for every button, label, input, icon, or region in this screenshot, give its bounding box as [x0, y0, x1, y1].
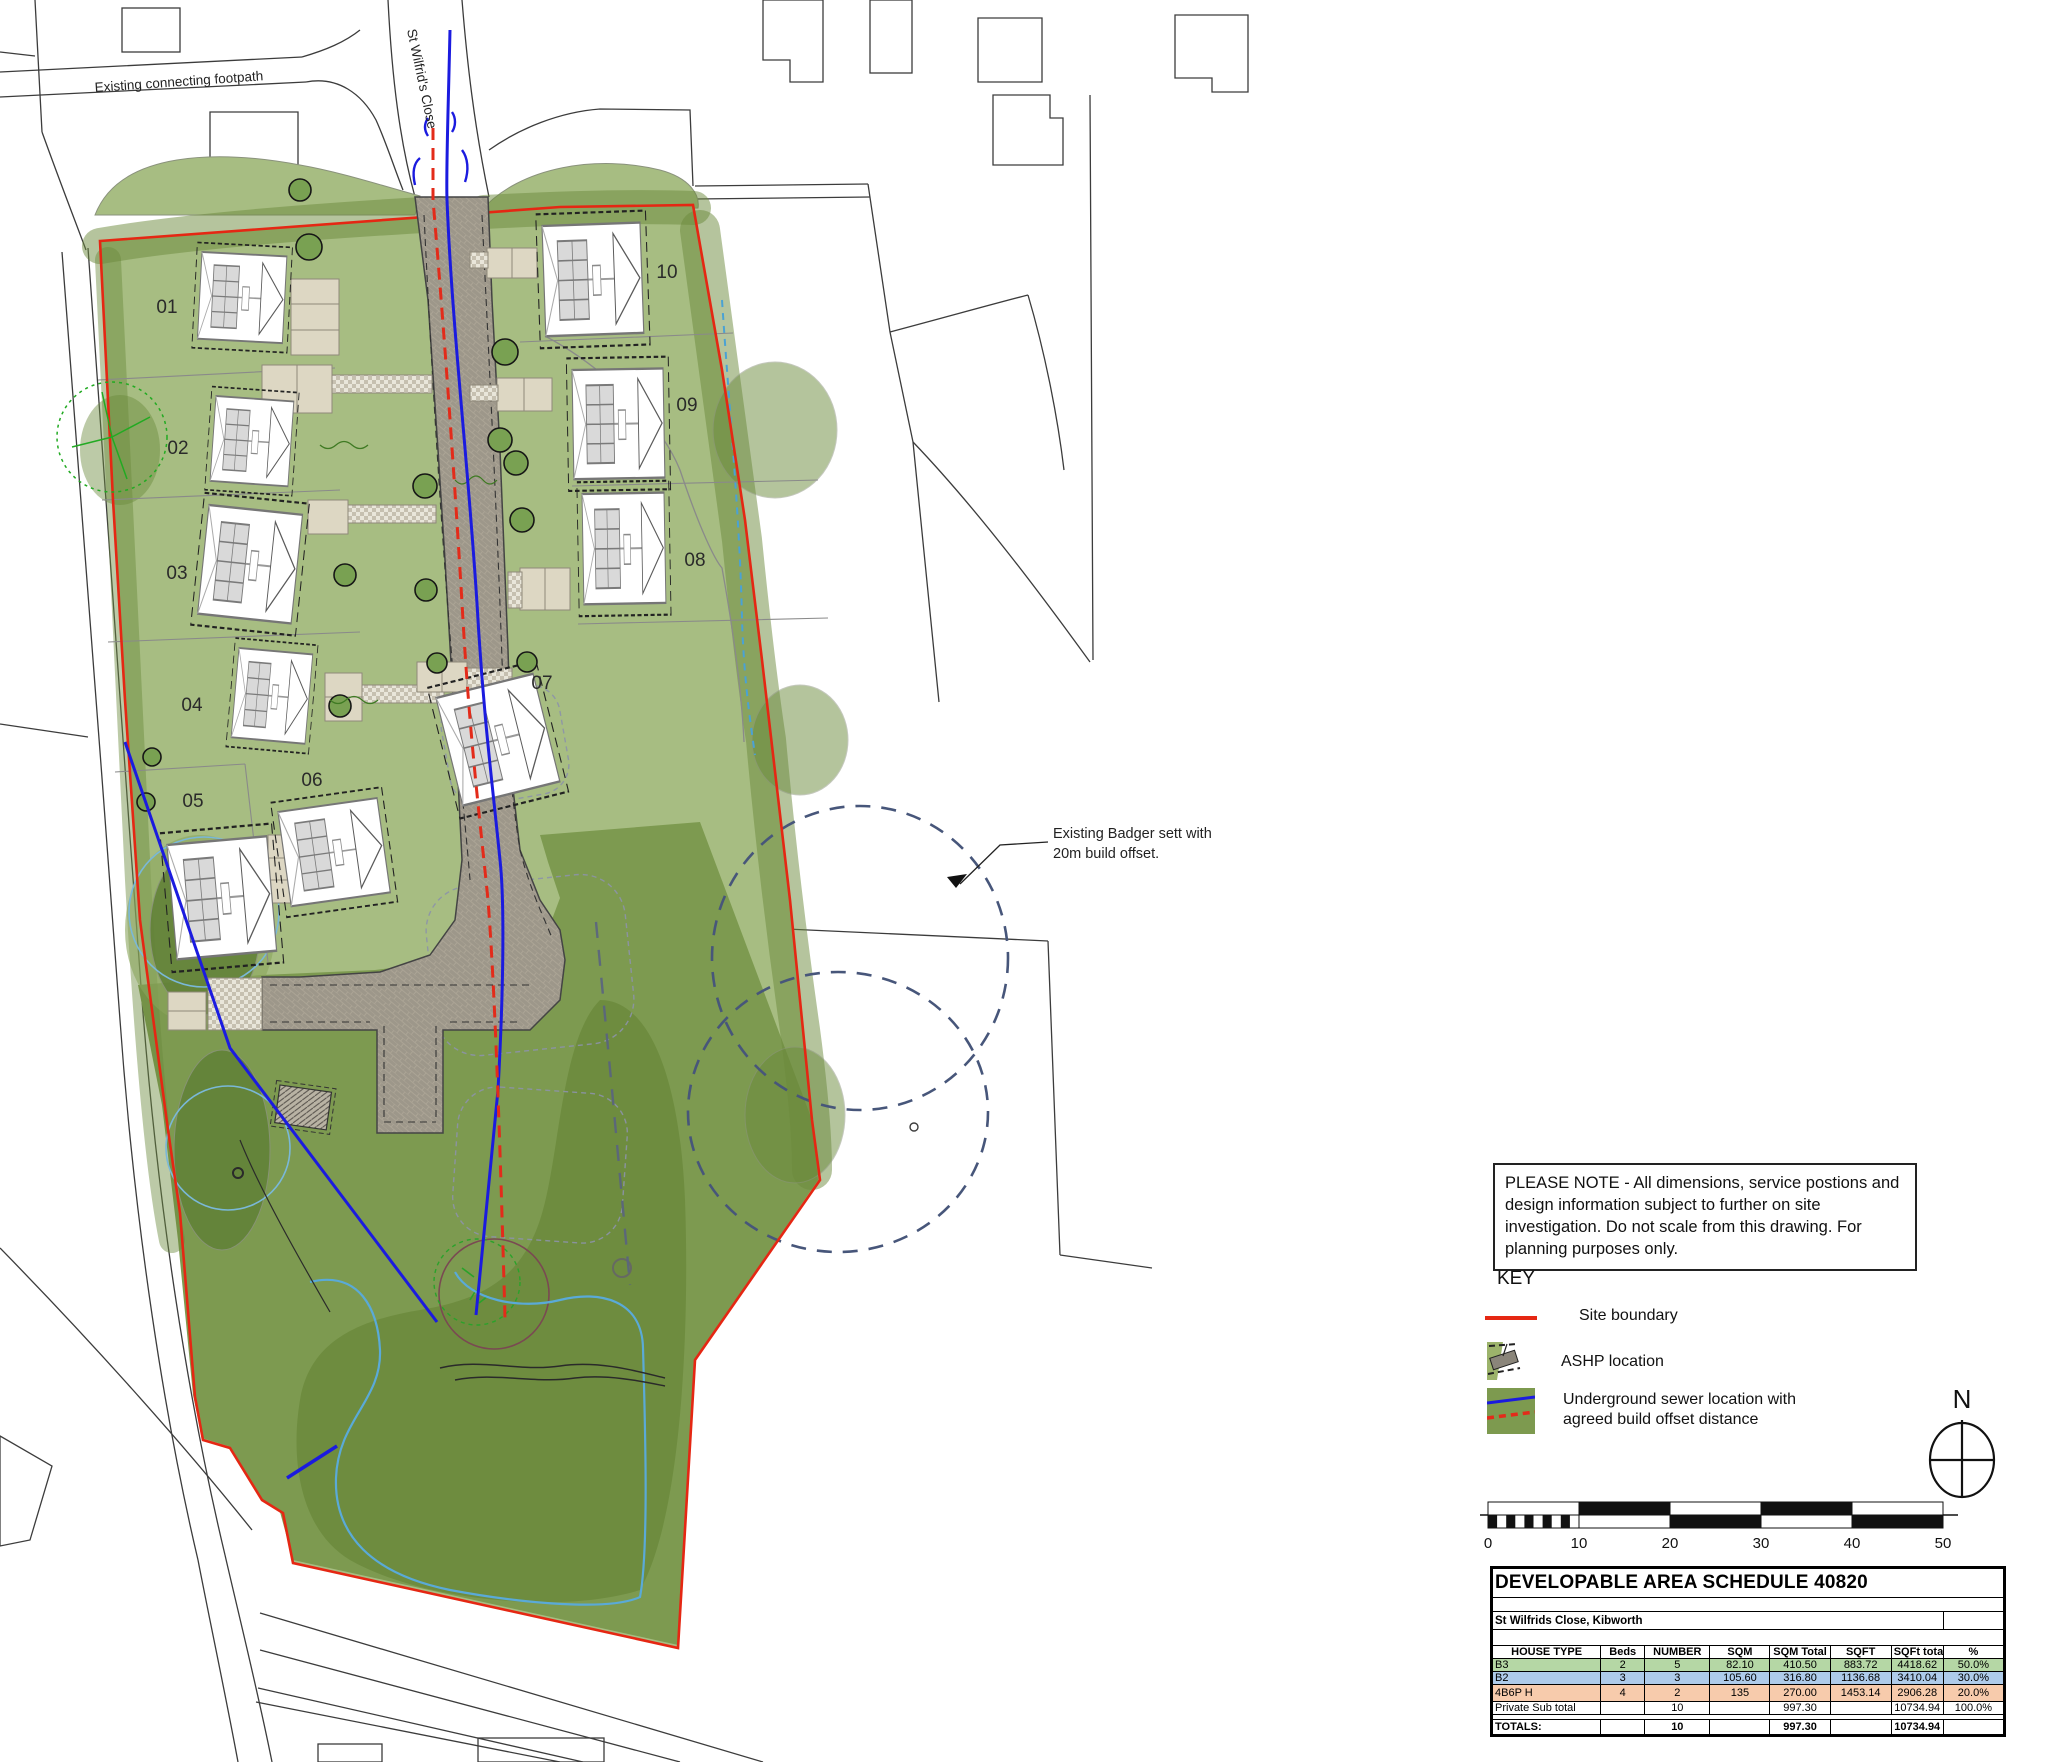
cell: [1601, 1720, 1645, 1735]
legend-label: Site boundary: [1579, 1306, 1678, 1326]
col-header: HOUSE TYPE: [1493, 1646, 1601, 1659]
cell: [1943, 1720, 2003, 1735]
spacer-row: [1493, 1598, 2004, 1612]
cell: 82.10: [1710, 1659, 1770, 1672]
cell: 2: [1601, 1659, 1645, 1672]
subtitle-end-cell: [1943, 1612, 2003, 1630]
cell: 883.72: [1830, 1659, 1891, 1672]
cell: 3: [1645, 1672, 1710, 1685]
cell: 997.30: [1770, 1720, 1830, 1735]
cell: 10734.94: [1891, 1702, 1943, 1715]
cell: 10734.94: [1891, 1720, 1943, 1735]
cell: 1136.68: [1830, 1672, 1891, 1685]
cell: Private Sub total: [1493, 1702, 1601, 1715]
footpath-label: Existing connecting footpath: [94, 68, 264, 95]
cell: 105.60: [1710, 1672, 1770, 1685]
scale-tick: 50: [1935, 1535, 1952, 1552]
plot-label-05: 05: [182, 791, 203, 812]
north-label: N: [1953, 1384, 1972, 1414]
cell: 2: [1645, 1685, 1710, 1702]
plot-label-01: 01: [156, 297, 177, 318]
plot-label-08: 08: [684, 550, 705, 571]
cell: 1453.14: [1830, 1685, 1891, 1702]
col-header: SQM: [1710, 1646, 1770, 1659]
col-header: %: [1943, 1646, 2003, 1659]
house-plot-08: [577, 481, 671, 617]
legend-site-boundary: Site boundary: [1485, 1308, 1678, 1326]
scale-tick-labels: 0 10 20 30 40 50: [1484, 1535, 1952, 1552]
col-header: NUMBER: [1645, 1646, 1710, 1659]
cell: 10: [1645, 1720, 1710, 1735]
cell: 316.80: [1770, 1672, 1830, 1685]
key-title: KEY: [1497, 1268, 1535, 1290]
legend-ashp: ASHP location: [1487, 1342, 1664, 1380]
house-plot-10: [536, 211, 650, 349]
drawing-sheet: Existing connecting footpath St Wilfrid'…: [0, 0, 2048, 1762]
schedule-row-b2: B2 3 3 105.60 316.80 1136.68 3410.04 30.…: [1493, 1672, 2004, 1685]
legend-sewer-offset: Underground sewer location with agreed b…: [1487, 1388, 1843, 1434]
schedule-row-b3: B3 2 5 82.10 410.50 883.72 4418.62 50.0%: [1493, 1659, 2004, 1672]
schedule-subtitle: St Wilfrids Close, Kibworth: [1493, 1612, 1944, 1630]
plot-label-06: 06: [301, 770, 322, 791]
scale-tick: 40: [1844, 1535, 1861, 1552]
badger-note-line1: Existing Badger sett with: [1053, 826, 1212, 842]
scale-tick: 20: [1662, 1535, 1679, 1552]
cell: 30.0%: [1943, 1672, 2003, 1685]
plot-label-09: 09: [676, 395, 697, 416]
cell: [1710, 1720, 1770, 1735]
cell: 3410.04: [1891, 1672, 1943, 1685]
cell: 5: [1645, 1659, 1710, 1672]
cell: B2: [1493, 1672, 1601, 1685]
cell: 20.0%: [1943, 1685, 2003, 1702]
house-plot-02: [205, 387, 299, 496]
cell: 3: [1601, 1672, 1645, 1685]
cell: 50.0%: [1943, 1659, 2003, 1672]
site-boundary-line-icon: [1485, 1316, 1537, 1320]
schedule-row-subtotal: Private Sub total 10 997.30 10734.94 100…: [1493, 1702, 2004, 1715]
cell: 4: [1601, 1685, 1645, 1702]
cell: [1830, 1702, 1891, 1715]
house-plot-03: [191, 493, 310, 636]
cell: [1710, 1702, 1770, 1715]
cell: 410.50: [1770, 1659, 1830, 1672]
schedule-title: DEVELOPABLE AREA SCHEDULE 40820: [1493, 1569, 2004, 1598]
plot-label-04: 04: [181, 695, 203, 716]
cell: [1830, 1720, 1891, 1735]
plot-label-02: 02: [167, 438, 188, 459]
plot-label-03: 03: [166, 563, 187, 584]
north-arrow: N: [1912, 1382, 2012, 1512]
cell: 2906.28: [1891, 1685, 1943, 1702]
sewer-offset-swatch-icon: [1487, 1388, 1535, 1434]
cell: 4418.62: [1891, 1659, 1943, 1672]
street-label: St Wilfrid's Close: [404, 28, 440, 130]
col-header: SQFT: [1830, 1646, 1891, 1659]
scale-tick: 10: [1571, 1535, 1588, 1552]
house-plot-09: [566, 357, 670, 491]
scale-tick: 0: [1484, 1535, 1492, 1552]
developable-area-schedule: DEVELOPABLE AREA SCHEDULE 40820 St Wilfr…: [1490, 1566, 2006, 1737]
cell: 270.00: [1770, 1685, 1830, 1702]
scale-tick: 30: [1753, 1535, 1770, 1552]
ashp-map-swatch-icon: [1487, 1342, 1523, 1380]
col-header: SQM Total: [1770, 1646, 1830, 1659]
spacer-row: [1493, 1630, 2004, 1646]
cell: 100.0%: [1943, 1702, 2003, 1715]
cell: [1601, 1702, 1645, 1715]
col-header: Beds: [1601, 1646, 1645, 1659]
please-note-box: PLEASE NOTE - All dimensions, service po…: [1493, 1163, 1917, 1271]
cell: 997.30: [1770, 1702, 1830, 1715]
col-header: SQFt total: [1891, 1646, 1943, 1659]
cell: 4B6P H: [1493, 1685, 1601, 1702]
cell: 10: [1645, 1702, 1710, 1715]
house-plot-01: [192, 242, 293, 352]
house-plot-04: [226, 638, 318, 754]
cell: TOTALS:: [1493, 1720, 1601, 1735]
sewer-markers: [414, 112, 468, 185]
badger-note-line2: 20m build offset.: [1053, 846, 1159, 862]
plot-label-10: 10: [656, 262, 677, 283]
schedule-row-4b6p: 4B6P H 4 2 135 270.00 1453.14 2906.28 20…: [1493, 1685, 2004, 1702]
plot-label-07: 07: [531, 673, 552, 694]
legend-label: Underground sewer location with agreed b…: [1563, 1390, 1843, 1430]
legend-label: ASHP location: [1561, 1352, 1664, 1372]
cell: 135: [1710, 1685, 1770, 1702]
cell: B3: [1493, 1659, 1601, 1672]
scale-bar: 0 10 20 30 40 50: [1480, 1494, 1970, 1556]
schedule-totals-row: TOTALS: 10 997.30 10734.94: [1493, 1720, 2004, 1735]
schedule-header-row: HOUSE TYPE Beds NUMBER SQM SQM Total SQF…: [1493, 1646, 2004, 1659]
